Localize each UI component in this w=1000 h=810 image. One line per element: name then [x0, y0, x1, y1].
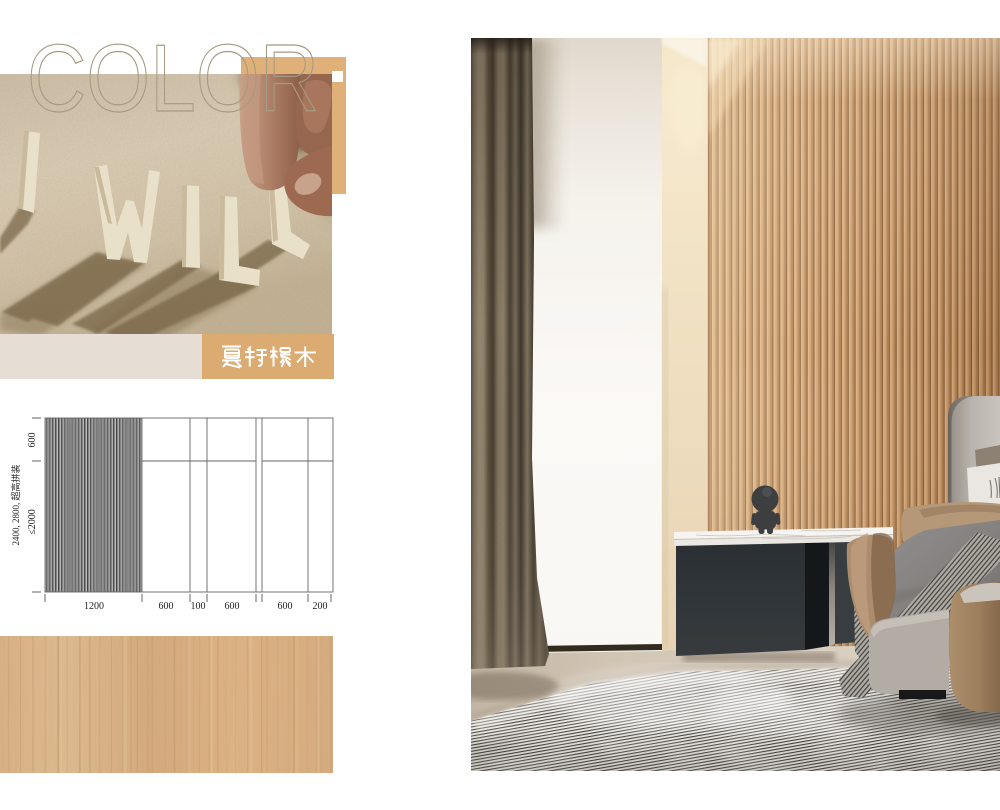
- svg-text:COLOR: COLOR: [27, 25, 319, 130]
- svg-text:2400, 2800, 超高拼装: 2400, 2800, 超高拼装: [10, 464, 21, 545]
- svg-text:200: 200: [313, 601, 328, 612]
- svg-text:600: 600: [278, 601, 293, 612]
- svg-text:≤2000: ≤2000: [27, 509, 38, 535]
- svg-text:1200: 1200: [84, 601, 104, 612]
- svg-text:600: 600: [225, 601, 240, 612]
- svg-text:600: 600: [27, 433, 38, 448]
- svg-text:100: 100: [191, 601, 206, 612]
- svg-text:600: 600: [159, 601, 174, 612]
